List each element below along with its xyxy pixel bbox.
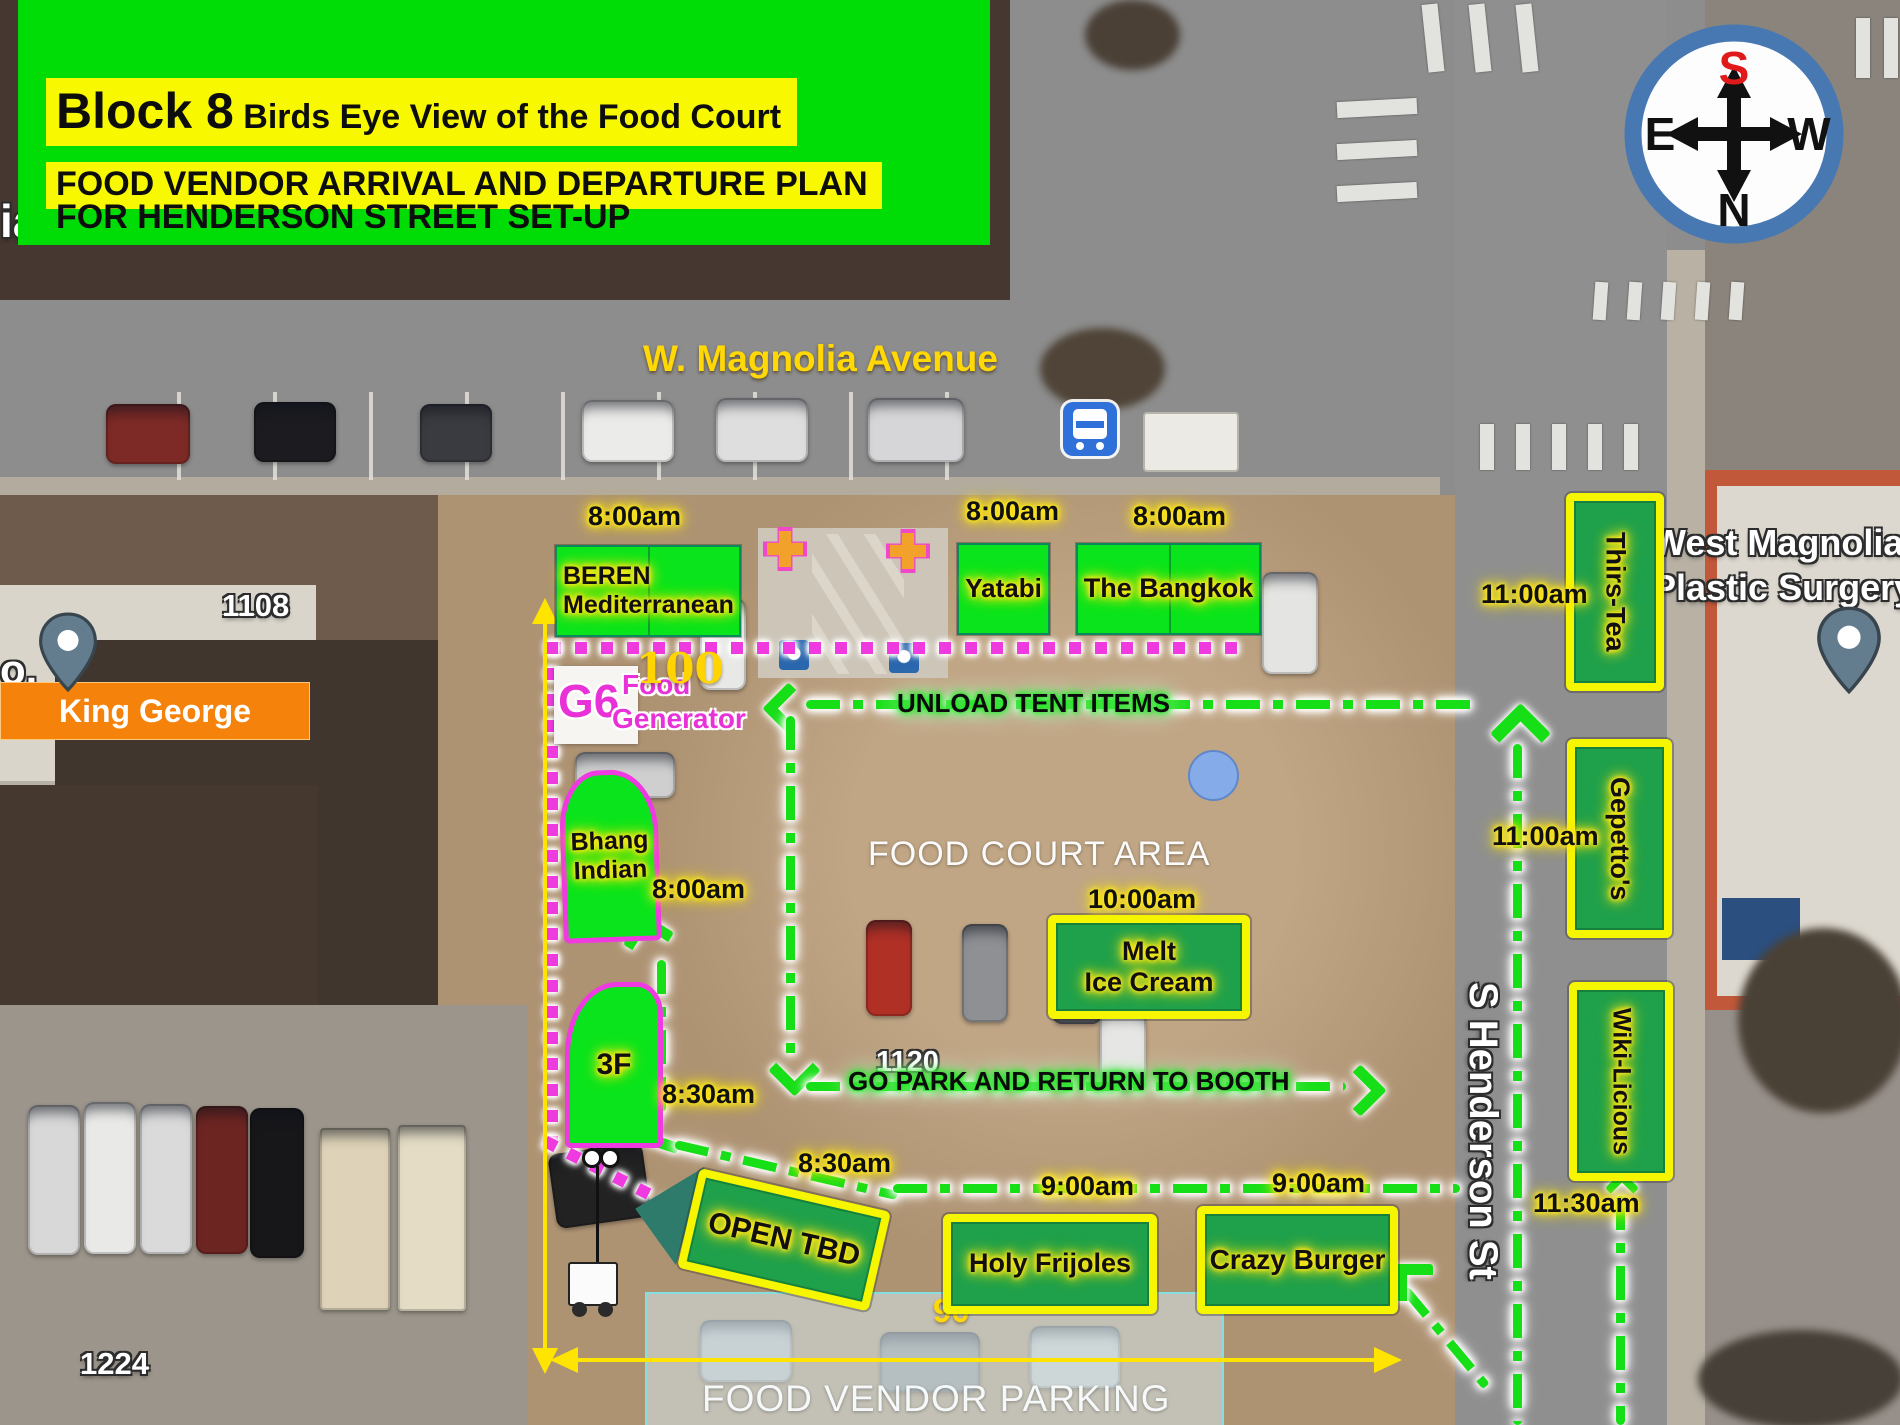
cart-wheel	[598, 1302, 613, 1317]
time-holy: 9:00am	[1041, 1171, 1134, 1202]
route-arrow-upleft-corner	[1396, 1264, 1433, 1301]
crosswalk-stripe	[1661, 282, 1677, 321]
cart-pole	[596, 1166, 599, 1262]
parked-car	[254, 402, 336, 462]
address-1108: 1108	[222, 588, 289, 624]
booth-bhang: Bhang Indian	[558, 768, 662, 943]
crosswalk-stripe	[1624, 424, 1638, 470]
holy-name: Holy Frijoles	[969, 1248, 1131, 1279]
parked-car	[28, 1105, 80, 1255]
blue-circle-marker	[1188, 750, 1239, 801]
sidewalk-right	[1667, 250, 1705, 1425]
crosswalk-stripe	[1552, 424, 1566, 470]
tree	[1738, 928, 1900, 1113]
parked-car	[140, 1104, 192, 1254]
yatabi-name: Yatabi	[965, 574, 1042, 604]
header-title: Block 8 Birds Eye View of the Food Court	[46, 78, 797, 146]
bus-windshield	[1076, 421, 1104, 428]
gepettos-name: Gepetto's	[1604, 777, 1635, 900]
dark-roof-left-lower	[0, 785, 318, 1007]
crosswalk-stripe	[1856, 18, 1870, 78]
crosswalk-stripe	[1421, 3, 1444, 72]
number-100: 100	[636, 644, 724, 693]
crosswalk-stripe	[1695, 282, 1711, 321]
booth-holy-frijoles: Holy Frijoles	[943, 1214, 1157, 1314]
thirstea-name: Thirs-Tea	[1599, 532, 1630, 652]
compass-icon: S N E W	[1622, 22, 1846, 246]
bus-stop-icon	[1063, 402, 1117, 456]
street-label-henderson: S Henderson St	[1460, 982, 1505, 1280]
building-label-west-magnolia: West Magnolia Plastic Surgery	[1652, 520, 1900, 610]
parked-car	[582, 400, 674, 462]
map-stage: Block 8 Birds Eye View of the Food Court…	[0, 0, 1900, 1425]
parked-car	[420, 404, 492, 462]
route-henderson-line-2	[1616, 1196, 1625, 1425]
bhang-name: Bhang Indian	[570, 826, 650, 886]
route-unload-label: UNLOAD TENT ITEMS	[897, 688, 1170, 719]
time-beren: 8:00am	[588, 501, 681, 532]
cart-body	[568, 1262, 618, 1306]
generator-line2: Generator	[612, 702, 746, 736]
booth-beren: BEREN Mediterranean	[555, 545, 741, 637]
melt-line1: Melt	[1084, 936, 1213, 967]
header-line3-text: FOR HENDERSON STREET SET-UP	[56, 198, 630, 236]
bus-shelter	[1143, 412, 1239, 472]
yellow-arrow-left	[550, 1347, 578, 1373]
melt-name: Melt Ice Cream	[1084, 936, 1213, 998]
bus-wheel	[1096, 442, 1104, 450]
tree	[1085, 0, 1180, 70]
booth-bangkok: The Bangkok	[1076, 543, 1261, 635]
crosswalk-stripe	[1337, 182, 1418, 202]
cart-hitch-ring	[600, 1148, 620, 1168]
time-thirstea: 11:00am	[1481, 579, 1588, 610]
parked-car	[716, 398, 808, 462]
parked-car	[106, 404, 190, 464]
booth-melt: Melt Ice Cream	[1048, 915, 1250, 1019]
cart-icon	[560, 1140, 630, 1320]
food-court-area-label: FOOD COURT AREA	[868, 835, 1210, 874]
time-wikilicious: 11:30am	[1533, 1188, 1640, 1219]
time-bhang: 8:00am	[652, 874, 745, 905]
king-george-label: King George	[59, 693, 251, 730]
west-magnolia-line1: West Magnolia	[1652, 520, 1900, 565]
time-3f: 8:30am	[662, 1079, 755, 1110]
threef-name: 3F	[596, 1048, 631, 1083]
header-line3: FOR HENDERSON STREET SET-UP	[56, 198, 630, 237]
svg-text:N: N	[1717, 184, 1750, 236]
bhang-line1: Bhang	[570, 826, 649, 857]
address-1224: 1224	[80, 1346, 149, 1382]
booth-wikilicious: Wiki-Licious	[1569, 982, 1673, 1181]
time-crazy: 9:00am	[1272, 1168, 1365, 1199]
parked-car	[962, 924, 1008, 1022]
route-nine-am-line	[893, 1184, 1460, 1193]
crazy-name: Crazy Burger	[1210, 1244, 1386, 1276]
crosswalk-stripe	[1588, 424, 1602, 470]
route-vertical-west	[786, 716, 795, 1062]
crosswalk-stripe	[1884, 18, 1898, 78]
crosswalk-stripe	[1627, 282, 1643, 321]
crosswalk-stripe	[1480, 424, 1494, 470]
time-yatabi: 8:00am	[966, 496, 1059, 527]
crosswalk-stripe	[1516, 424, 1530, 470]
west-magnolia-line2: Plastic Surgery	[1652, 565, 1900, 610]
booth-beren-name: BEREN Mediterranean	[557, 562, 734, 620]
svg-text:W: W	[1787, 108, 1831, 160]
booth-yatabi: Yatabi	[957, 543, 1050, 635]
tree	[1698, 1330, 1900, 1425]
booth-3f: 3F	[565, 982, 663, 1148]
parked-car	[196, 1106, 248, 1254]
parked-car	[868, 398, 964, 462]
open-tbd-name: OPEN TBD	[705, 1205, 864, 1273]
vendor-parking-label: FOOD VENDOR PARKING	[702, 1378, 1171, 1420]
cart-hitch-ring	[582, 1148, 602, 1168]
header-block-label: Block 8	[56, 83, 234, 139]
compass-rose: S N E W	[1622, 22, 1846, 251]
svg-text:S: S	[1719, 42, 1750, 94]
route-gopark-label: GO PARK AND RETURN TO BOOTH	[848, 1066, 1290, 1097]
box-truck	[320, 1128, 390, 1310]
street-label-magnolia: W. Magnolia Avenue	[643, 338, 998, 380]
bhang-line2: Indian	[571, 855, 650, 886]
bus-wheel	[1076, 442, 1084, 450]
yellow-measure-vertical	[543, 622, 547, 1350]
beren-line1: BEREN	[563, 562, 734, 591]
time-gepettos: 11:00am	[1492, 821, 1599, 852]
wikilicious-name: Wiki-Licious	[1607, 1008, 1636, 1155]
cart-wheel	[572, 1302, 587, 1317]
tree	[1040, 328, 1165, 410]
parked-car	[1262, 572, 1318, 674]
parked-car	[250, 1108, 304, 1258]
booth-crazy-burger: Crazy Burger	[1197, 1206, 1398, 1314]
parked-car	[866, 920, 912, 1016]
header-panel: Block 8 Birds Eye View of the Food Court…	[18, 0, 990, 245]
plastic-surgery-roof-trim-top	[1705, 470, 1900, 486]
time-bangkok: 8:00am	[1133, 501, 1226, 532]
time-melt: 10:00am	[1088, 884, 1196, 915]
header-subtitle: Birds Eye View of the Food Court	[234, 98, 781, 136]
yellow-arrow-right	[1374, 1347, 1402, 1373]
parked-car	[84, 1102, 136, 1254]
box-truck	[398, 1125, 466, 1311]
time-open-tbd: 8:30am	[798, 1148, 891, 1179]
map-pin-icon	[38, 612, 98, 692]
melt-line2: Ice Cream	[1084, 967, 1213, 998]
sidewalk-top	[0, 477, 1440, 497]
yellow-measure-horizontal	[576, 1358, 1376, 1362]
crosswalk-stripe	[1593, 282, 1609, 321]
beren-line2: Mediterranean	[563, 591, 734, 620]
g6-label: G6	[558, 674, 619, 728]
crosswalk-stripe	[1337, 98, 1418, 118]
bangkok-name: The Bangkok	[1084, 573, 1254, 604]
crosswalk-stripe	[1337, 140, 1418, 160]
svg-text:E: E	[1645, 108, 1676, 160]
map-pin-icon	[1816, 606, 1882, 694]
crosswalk-stripe	[1729, 282, 1745, 321]
